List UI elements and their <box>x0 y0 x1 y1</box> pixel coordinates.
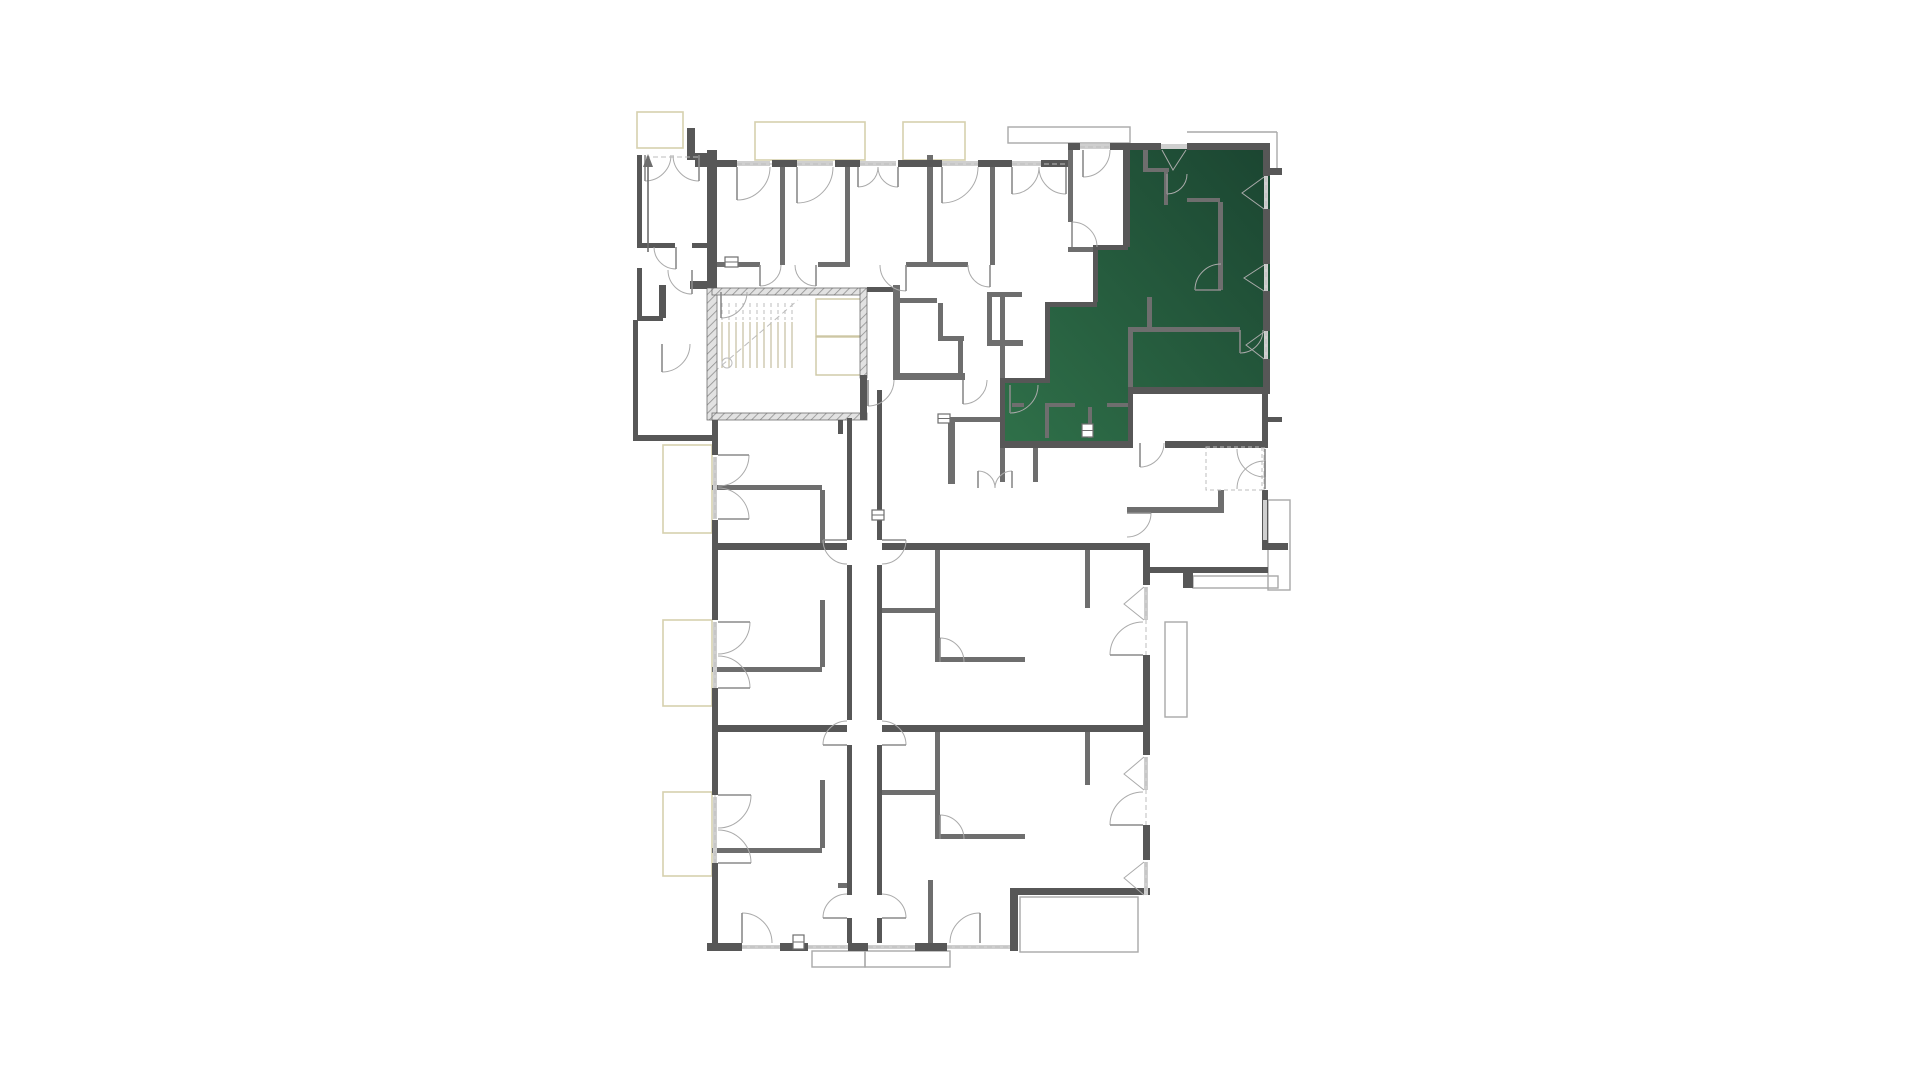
wall <box>633 435 717 441</box>
wall <box>1010 888 1143 895</box>
door-swing-arc <box>737 167 770 200</box>
door-swing-arc <box>950 913 980 943</box>
interior-wall <box>820 600 825 667</box>
interior-wall <box>1000 292 1005 380</box>
window-glass <box>868 945 915 949</box>
interior-wall <box>1000 448 1005 482</box>
interior-wall <box>712 667 822 672</box>
interior-wall <box>927 155 933 267</box>
balcony-outline <box>663 620 712 706</box>
wall <box>882 543 1150 550</box>
wall <box>1148 567 1268 573</box>
window-glass <box>1161 144 1187 149</box>
interior-wall <box>935 657 1025 662</box>
floor-plan-svg <box>0 0 1920 1080</box>
interior-wall <box>938 336 964 341</box>
interior-wall <box>1128 327 1240 332</box>
fixtures-layer <box>725 257 1093 949</box>
wall <box>877 445 882 540</box>
interior-wall <box>712 848 822 853</box>
wall <box>712 725 847 732</box>
wall <box>712 543 847 550</box>
interior-wall <box>987 340 1023 346</box>
balcony-outline <box>637 112 683 148</box>
highlighted-unit[interactable] <box>1005 145 1270 448</box>
door-swing-arc <box>823 894 847 918</box>
interior-wall <box>906 262 968 267</box>
door-swing-arc <box>1110 622 1143 655</box>
interior-wall <box>1218 202 1223 290</box>
wall <box>692 243 707 248</box>
wall <box>712 863 718 943</box>
interior-wall <box>987 292 992 342</box>
wall <box>847 745 852 895</box>
floor-plan-page <box>0 0 1920 1080</box>
interior-wall <box>948 417 955 484</box>
staircase-layer <box>714 299 861 375</box>
interior-wall <box>1218 490 1224 513</box>
terrace-outline <box>865 951 950 967</box>
wall <box>637 268 642 318</box>
interior-wall <box>1085 550 1090 608</box>
interior-wall <box>893 373 965 380</box>
wall <box>712 688 718 795</box>
wall <box>835 160 860 167</box>
wall <box>1143 825 1150 860</box>
door-swing-arc <box>718 622 750 654</box>
door-swing-arc <box>654 247 676 269</box>
wall <box>838 420 843 434</box>
wall <box>1000 383 1005 441</box>
elevator-shaft <box>816 299 861 336</box>
wall <box>1263 209 1270 264</box>
french-door-outline <box>1206 447 1262 490</box>
door-swing-arc <box>721 292 747 318</box>
wall <box>712 520 718 620</box>
wall <box>1045 302 1097 307</box>
door-swing-arc <box>968 265 990 287</box>
door-swing-arc <box>1083 150 1110 177</box>
wall <box>707 943 742 951</box>
wall <box>915 943 947 951</box>
balcony-outline <box>903 122 965 160</box>
door-swing-arc <box>1237 449 1265 477</box>
interior-wall <box>948 417 1005 422</box>
balcony-outline <box>755 122 865 160</box>
highlighted-unit-layer <box>1005 145 1270 448</box>
wall <box>772 160 797 167</box>
terrace-outline <box>1165 622 1187 717</box>
wall <box>707 150 717 288</box>
interior-wall <box>820 780 825 848</box>
wall <box>1262 543 1288 550</box>
wall <box>877 918 882 943</box>
door-swing-arc <box>858 167 878 187</box>
interior-wall <box>1085 727 1090 785</box>
wall <box>882 725 1143 732</box>
door-swing-arc <box>760 265 781 286</box>
interior-wall <box>1187 198 1220 202</box>
terrace-outline <box>1020 897 1138 952</box>
wall <box>633 320 638 437</box>
wall <box>1128 387 1268 394</box>
interior-wall <box>928 880 933 943</box>
interior-wall <box>958 341 963 375</box>
door-swing-arc <box>718 455 749 486</box>
wall <box>1187 143 1270 150</box>
balcony-outline <box>663 792 712 876</box>
wall <box>848 943 868 951</box>
interior-wall <box>1128 332 1133 387</box>
interior-wall <box>893 298 937 303</box>
wall <box>877 745 882 895</box>
interior-wall <box>990 167 995 265</box>
door-swing-arc <box>718 830 751 863</box>
hatched-wall <box>860 288 867 378</box>
door-swing-arc <box>1237 461 1265 489</box>
interior-wall <box>1107 403 1130 407</box>
interior-wall <box>935 834 1025 839</box>
interior-wall <box>1033 448 1038 482</box>
wall <box>1093 250 1098 302</box>
door-swing-arc <box>942 167 978 203</box>
interior-wall <box>938 303 943 339</box>
wall <box>1110 143 1161 150</box>
door-swing-arc <box>963 380 987 404</box>
hatched-wall <box>712 413 867 420</box>
door-swing-arc <box>662 344 690 372</box>
wall <box>637 155 642 245</box>
hatched-wall <box>707 288 717 420</box>
door-swing-arc <box>742 913 772 943</box>
wall <box>1093 245 1128 250</box>
wall <box>847 565 852 720</box>
door-swing-arc <box>1012 167 1039 194</box>
casement-window-symbol <box>1124 757 1144 790</box>
door-swing-arc <box>878 167 898 187</box>
door-swing-arc <box>882 894 906 918</box>
stair-start-marker <box>722 358 732 368</box>
interior-wall <box>1127 507 1220 513</box>
wall <box>1068 143 1080 150</box>
wall <box>898 160 942 167</box>
window-glass <box>1263 500 1267 540</box>
door-swing-arc <box>718 488 749 519</box>
wall <box>1183 573 1193 588</box>
interior-wall <box>1045 403 1075 407</box>
interior-wall <box>1045 407 1049 438</box>
interior-wall <box>820 490 825 543</box>
door-swing-arc <box>978 471 995 488</box>
wall <box>1143 655 1150 755</box>
interior-wall <box>1147 297 1152 327</box>
door-swing-arc <box>823 721 847 745</box>
wall <box>637 243 675 248</box>
door-swing-arc <box>1110 792 1143 825</box>
interior-wall <box>1143 148 1148 170</box>
wall <box>1000 378 1050 383</box>
interior-wall <box>1068 247 1096 252</box>
hatched-wall <box>712 288 867 295</box>
wall <box>1045 307 1050 378</box>
wall <box>1143 573 1150 585</box>
interior-wall <box>845 167 850 265</box>
terrace-outline <box>1008 127 1130 143</box>
wall <box>659 285 666 318</box>
wall <box>1263 291 1270 331</box>
interior-wall <box>882 790 935 795</box>
wall <box>847 418 852 540</box>
wall <box>1123 148 1130 247</box>
door-swing-arc <box>718 795 751 828</box>
door-swing-arc <box>1072 222 1097 247</box>
door-swing-arc <box>1039 167 1066 194</box>
wall <box>877 565 882 720</box>
balcony-outline <box>663 445 712 533</box>
wall <box>1010 895 1018 951</box>
door-swing-arc <box>882 721 906 745</box>
interior-wall <box>780 167 785 265</box>
wall <box>1267 168 1282 175</box>
wall <box>1000 441 1133 448</box>
door-swing-arc <box>668 270 692 294</box>
wall <box>867 287 893 292</box>
wall <box>877 390 882 445</box>
wall <box>978 160 1012 167</box>
elevator-shaft <box>816 337 861 375</box>
terrace-outline <box>1193 576 1278 588</box>
door-swing-arc <box>1140 443 1164 467</box>
door-swing-arc <box>795 265 816 286</box>
interior-wall <box>818 262 850 267</box>
interior-wall <box>1068 148 1073 222</box>
terrace-outline <box>812 951 865 967</box>
interior-wall <box>1143 168 1169 172</box>
door-swing-arc <box>1127 513 1151 537</box>
interior-wall <box>992 292 1022 297</box>
wall <box>1128 394 1133 441</box>
casement-window-symbol <box>1124 587 1144 620</box>
hatched-walls-layer <box>707 288 867 420</box>
wall <box>847 918 852 943</box>
door-swing-arc <box>797 167 833 203</box>
interior-wall <box>882 608 935 613</box>
wall <box>1262 417 1282 422</box>
interior-wall <box>1012 403 1024 407</box>
wall <box>860 375 867 420</box>
